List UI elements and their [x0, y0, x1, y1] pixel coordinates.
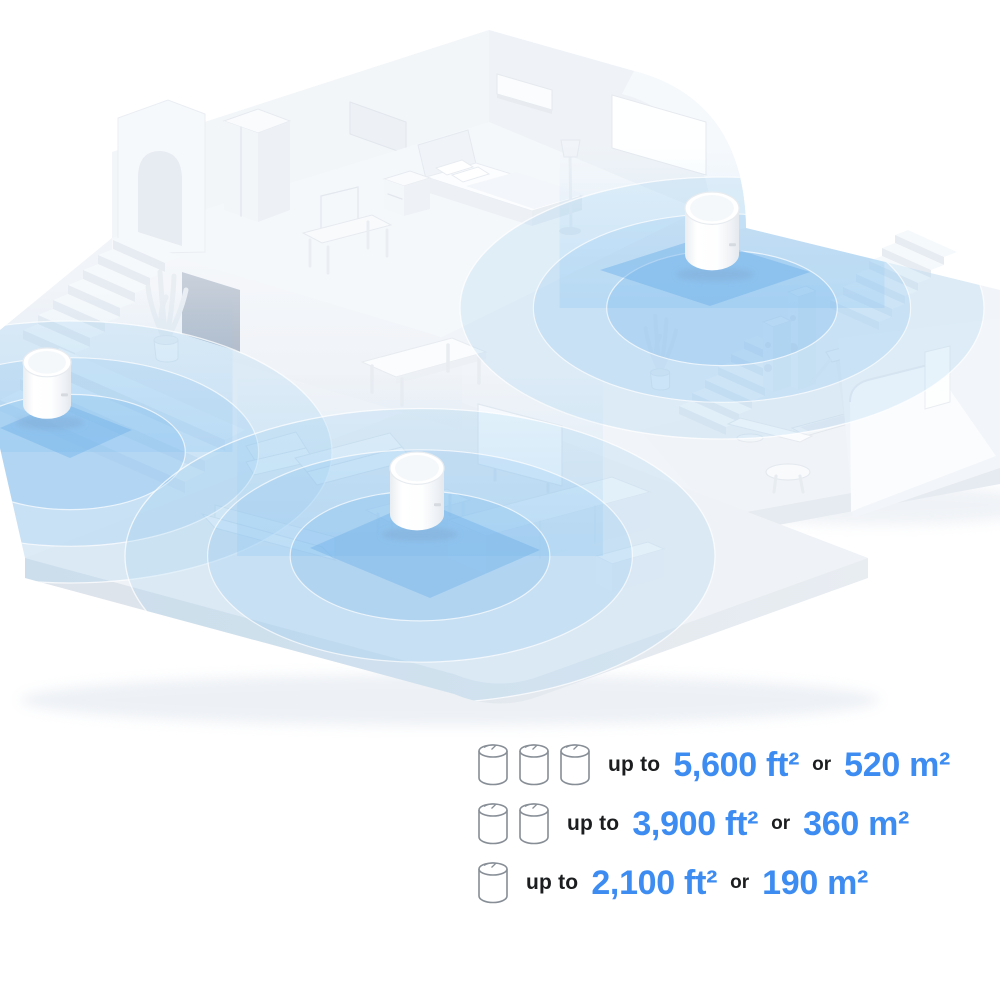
- unit-count-icons: [475, 801, 552, 848]
- coverage-metric: 520 m²: [844, 746, 950, 785]
- coverage-prefix: up to: [526, 871, 578, 895]
- unit-count-icons: [475, 742, 593, 789]
- coverage-conjunction: or: [771, 813, 790, 835]
- deco-unit-icon: [475, 801, 511, 848]
- coverage-imperial: 3,900 ft²: [632, 805, 758, 844]
- coverage-metric: 360 m²: [803, 805, 909, 844]
- deco-unit-icon: [475, 742, 511, 789]
- coverage-imperial: 2,100 ft²: [591, 864, 717, 903]
- deco-unit-icon: [516, 801, 552, 848]
- coverage-conjunction: or: [812, 754, 831, 776]
- unit-count-icons: [475, 860, 511, 907]
- mesh-wifi-coverage-graphic: up to 5,600 ft² or 520 m² up to 3,900 ft…: [0, 0, 1000, 1000]
- coverage-imperial: 5,600 ft²: [673, 746, 799, 785]
- deco-unit-icon: [475, 860, 511, 907]
- coverage-row-3pack: up to 5,600 ft² or 520 m²: [475, 740, 950, 790]
- coverage-metric: 190 m²: [762, 864, 868, 903]
- coverage-row-2pack: up to 3,900 ft² or 360 m²: [475, 799, 950, 849]
- deco-unit-icon: [516, 742, 552, 789]
- coverage-legend: up to 5,600 ft² or 520 m² up to 3,900 ft…: [475, 740, 950, 908]
- coverage-row-1pack: up to 2,100 ft² or 190 m²: [475, 858, 950, 908]
- coverage-conjunction: or: [730, 872, 749, 894]
- coverage-prefix: up to: [608, 753, 660, 777]
- deco-unit-icon: [557, 742, 593, 789]
- coverage-prefix: up to: [567, 812, 619, 836]
